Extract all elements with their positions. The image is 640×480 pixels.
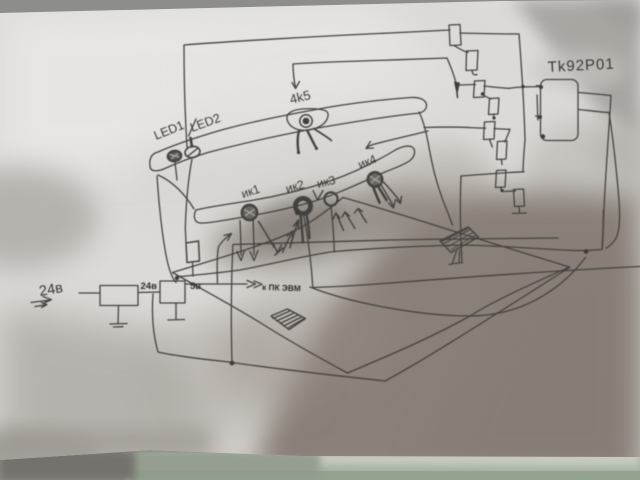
svg-text:5в: 5в — [190, 281, 201, 292]
svg-text:Tk92P01: Tk92P01 — [547, 56, 614, 76]
svg-text:24в: 24в — [141, 281, 158, 292]
svg-text:к ПК ЭВМ: к ПК ЭВМ — [262, 282, 301, 293]
